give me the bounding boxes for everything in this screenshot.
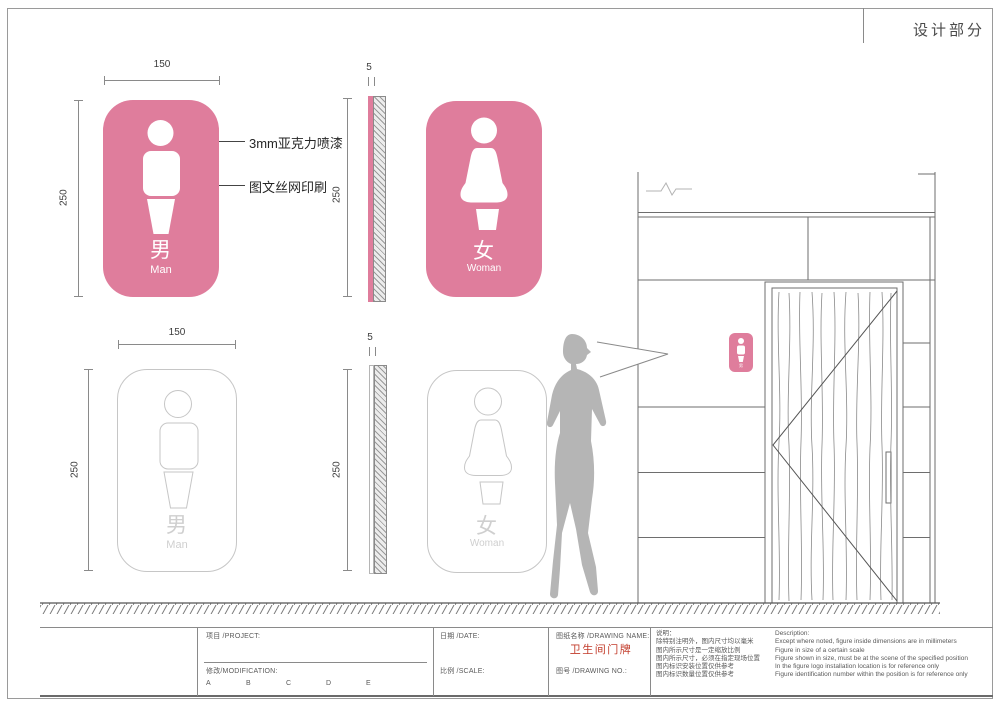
titleblock-divider [197, 627, 198, 696]
dim-tick [84, 570, 93, 571]
dim-height-label: 250 [57, 163, 71, 233]
sign-man-cn-label: 男 [118, 515, 236, 537]
revision-mark-d: D [326, 680, 331, 687]
dim-width-line [104, 80, 220, 81]
sign-woman-cn-label: 女 [426, 241, 542, 263]
dim-height-line [78, 100, 79, 297]
mini-sign-cn-label: 男 [729, 363, 753, 369]
date-label: 日期 /DATE: [440, 631, 480, 641]
dim-thickness-label: 5 [363, 332, 377, 343]
dim-width-line [118, 344, 236, 345]
dim-height-line [88, 369, 89, 571]
drawing-sheet: 设计部分 250 150 男 Man 3mm亚克力喷漆 图文丝网印刷 250 5 [0, 0, 1000, 707]
dim-tick [368, 77, 369, 86]
titleblock-divider [548, 627, 549, 696]
titleblock-divider [433, 627, 434, 696]
modification-label: 修改/MODIFICATION: [206, 666, 278, 676]
revision-mark-c: C [286, 680, 291, 687]
sign-mounted-on-wall: 男 [729, 333, 753, 372]
dim-tick [343, 98, 352, 99]
dim-tick [374, 77, 375, 86]
dim-width-label: 150 [104, 59, 220, 70]
sign-woman-outline: 女 Woman [427, 370, 547, 573]
drawing-name-value: 卫生间门牌 [556, 641, 646, 657]
titleblock-bottom-line [40, 695, 993, 697]
project-label: 项目 /PROJECT: [206, 631, 260, 641]
sign-man-outline: 男 Man [117, 369, 237, 572]
notes-en-line: In the figure logo installation location… [775, 663, 985, 671]
dim-width-label: 150 [118, 327, 236, 338]
sign-woman-en-label: Woman [428, 538, 546, 550]
side-profile-backing [373, 96, 386, 302]
dim-height-line [347, 369, 348, 571]
sign-man-en-label: Man [103, 264, 219, 276]
notes-cn-line: 图内所示尺寸是一定缩放比例 [656, 647, 768, 655]
project-underline [204, 662, 427, 663]
dim-thickness-label: 5 [362, 62, 376, 73]
drawing-name-label: 图纸名称 /DRAWING NAME: [556, 631, 649, 641]
sign-woman-front: 女 Woman [426, 101, 542, 297]
notes-cn-line: 除特别注明外，图内尺寸均以毫米 [656, 638, 768, 646]
dim-tick [84, 369, 93, 370]
sign-man-cn-label: 男 [103, 240, 219, 262]
notes-cn-line: 图内标识数量位置仅供参考 [656, 671, 768, 679]
dim-height-label: 250 [330, 160, 344, 230]
callout-material-label: 3mm亚克力喷漆 [249, 133, 343, 152]
dim-tick [118, 340, 119, 349]
notes-en-line: Except where noted, figure inside dimens… [775, 638, 985, 646]
revision-mark-b: B [246, 680, 251, 687]
titleblock-divider [650, 627, 651, 696]
sign-man-front: 男 Man [103, 100, 219, 297]
dim-tick [74, 100, 83, 101]
sign-man-en-label: Man [118, 539, 236, 551]
dim-tick [369, 347, 370, 356]
dim-tick [104, 76, 105, 85]
dim-height-line [347, 98, 348, 297]
header-divider [863, 8, 864, 43]
notes-chinese: 说明： 除特别注明外，图内尺寸均以毫米 图内所示尺寸是一定缩放比例 图内所示尺寸… [656, 630, 768, 680]
notes-cn-line: 图内所示尺寸，必须在指定现场位置 [656, 655, 768, 663]
dim-tick [343, 296, 352, 297]
notes-en-line: Figure in size of a certain scale [775, 647, 985, 655]
notes-en-line: Figure shown in size, must be at the sce… [775, 655, 985, 663]
notes-en-title: Description: [775, 630, 985, 638]
notes-english: Description: Except where noted, figure … [775, 630, 985, 680]
page-title: 设计部分 [913, 19, 985, 40]
titleblock-top-line [40, 627, 993, 628]
sign-woman-cn-label: 女 [428, 516, 546, 538]
dim-tick [375, 347, 376, 356]
revision-mark-e: E [366, 680, 371, 687]
dim-height-label: 250 [68, 435, 82, 505]
dim-height-label: 250 [330, 435, 344, 505]
dim-tick [343, 570, 352, 571]
dim-tick [235, 340, 236, 349]
side-profile-backing [374, 365, 387, 574]
drawing-no-label: 图号 /DRAWING NO.: [556, 666, 627, 676]
notes-en-line: Figure identification number within the … [775, 671, 985, 679]
sign-woman-en-label: Woman [426, 263, 542, 275]
dim-tick [343, 369, 352, 370]
scale-label: 比例 /SCALE: [440, 666, 485, 676]
dim-tick [219, 76, 220, 85]
dim-tick [74, 296, 83, 297]
callout-print-label: 图文丝网印刷 [249, 177, 327, 196]
revision-mark-a: A [206, 680, 211, 687]
